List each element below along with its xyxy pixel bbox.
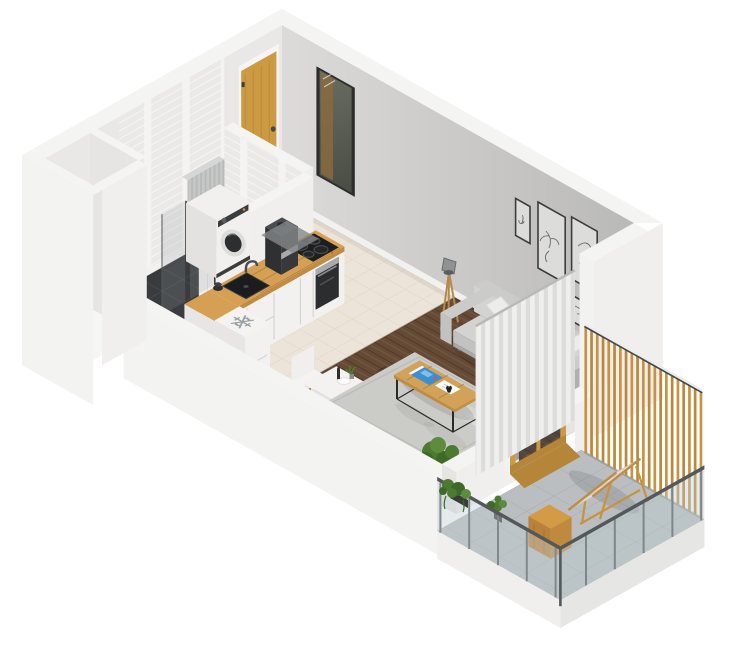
door-knob (271, 126, 276, 132)
mirror-reflection (321, 73, 333, 181)
shower-pane (162, 201, 186, 314)
lamp-opening (444, 270, 454, 275)
machine-knob (222, 218, 227, 224)
apartment-3d-scene (0, 0, 750, 668)
picture-frame (538, 202, 565, 283)
balcony (437, 270, 704, 628)
bottle (337, 367, 340, 379)
wall-mirror (316, 66, 354, 197)
machine-indicator (243, 208, 246, 211)
washing-machine (186, 184, 251, 278)
floorplan-render (0, 0, 750, 668)
